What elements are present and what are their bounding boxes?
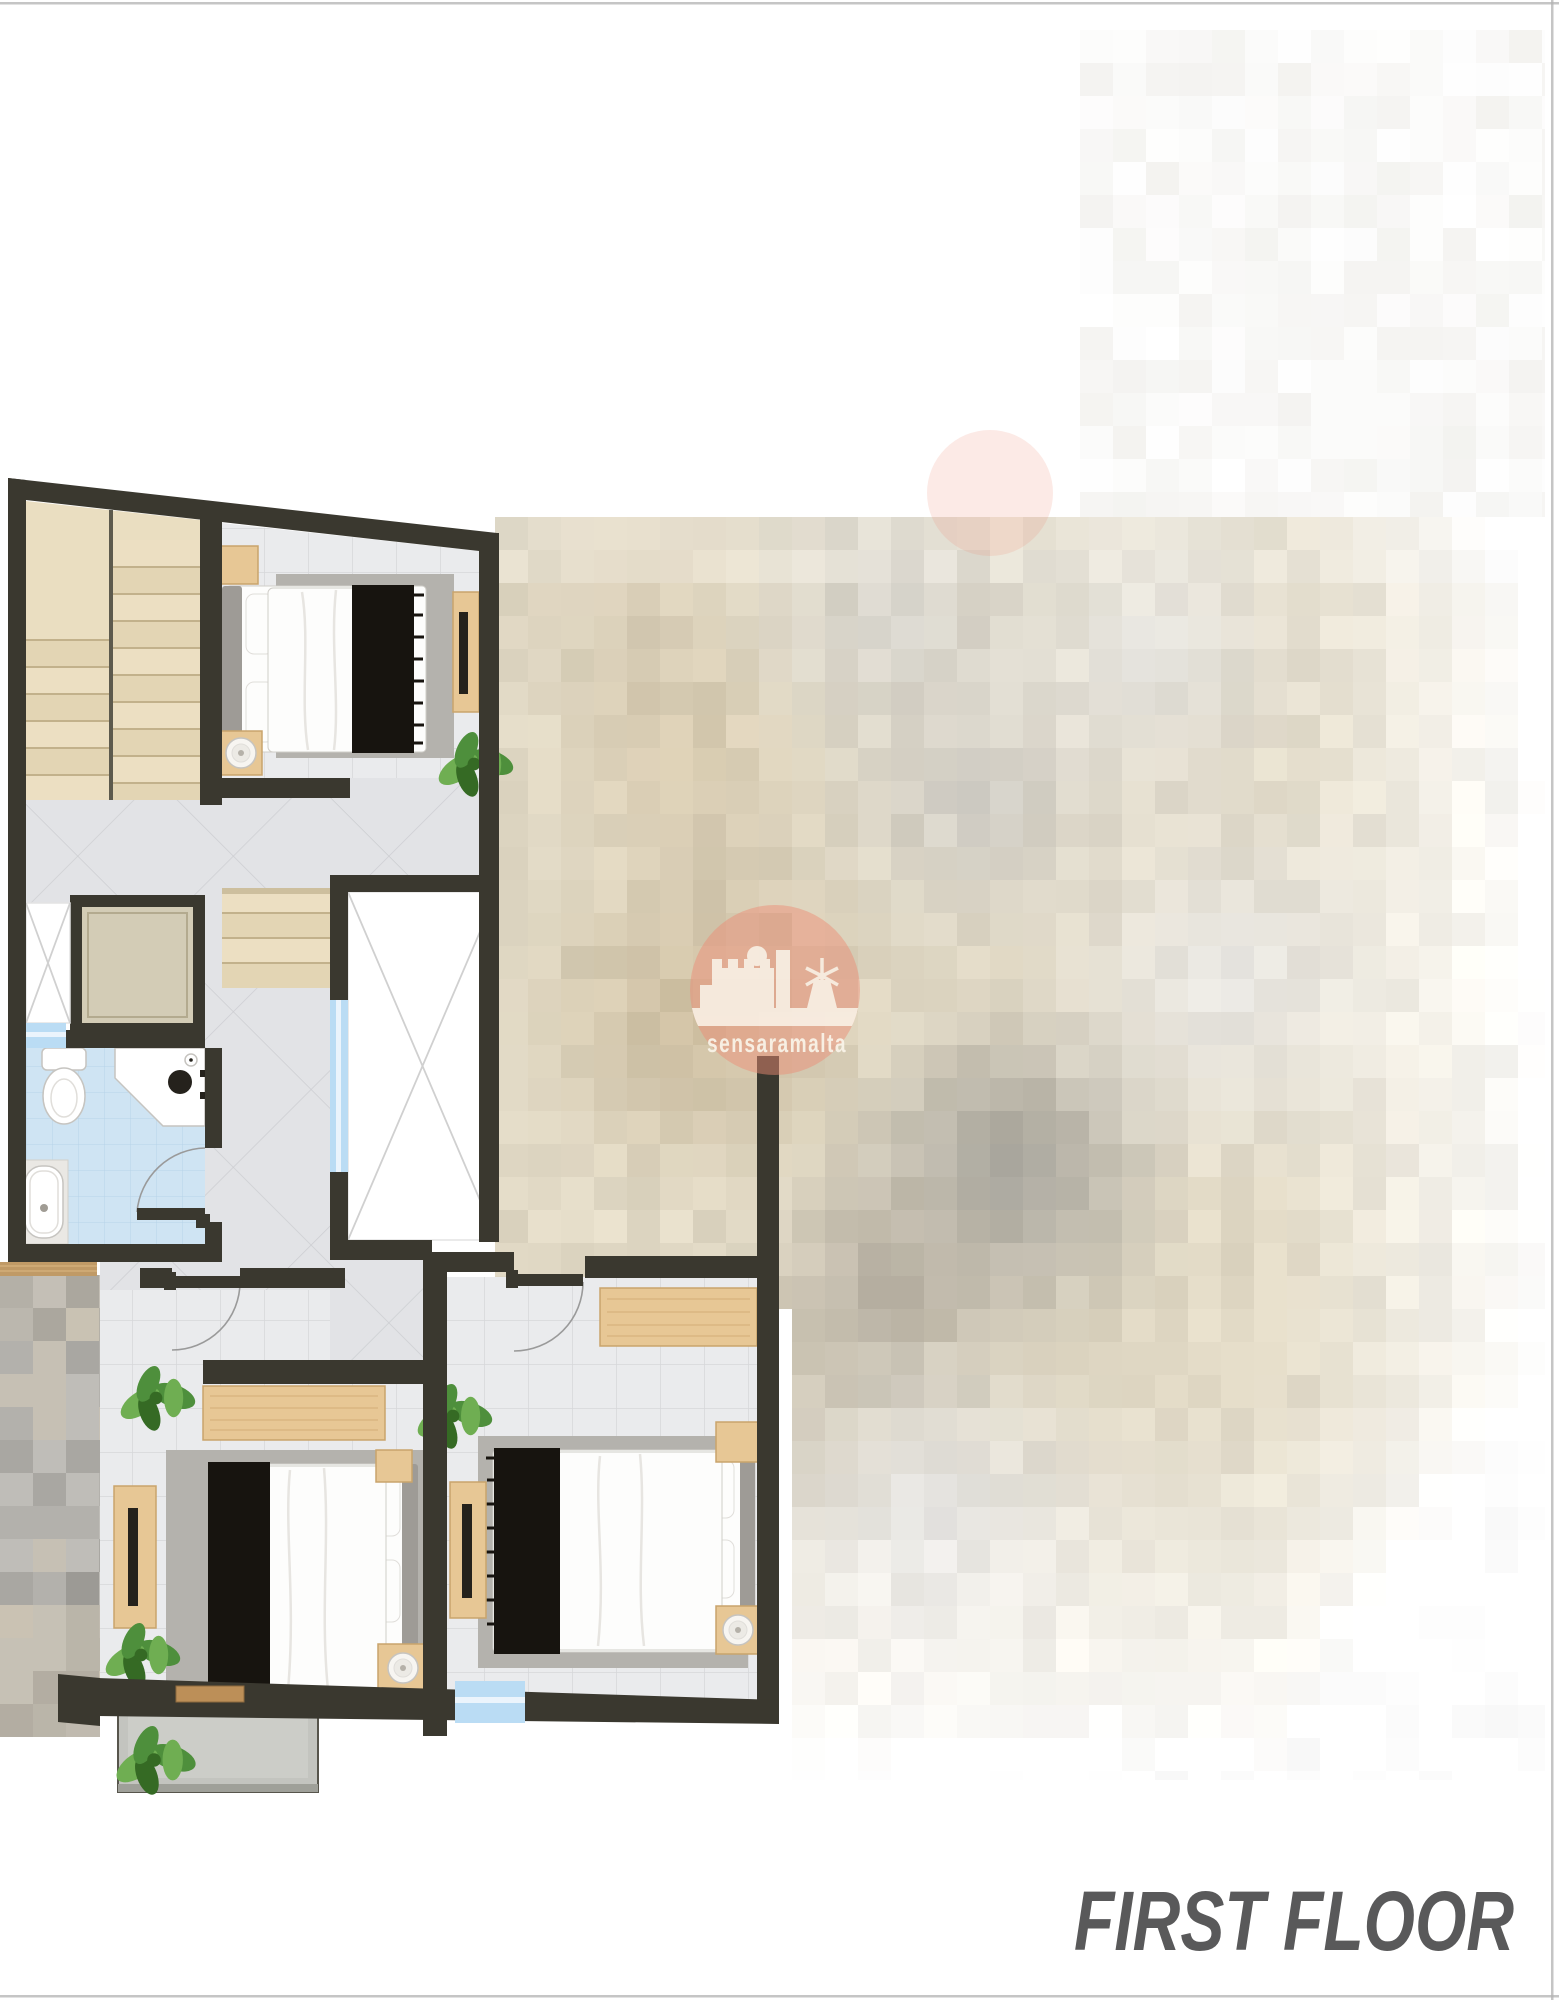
toilet [43, 1068, 85, 1124]
tv [459, 612, 468, 694]
void-shaft-large [348, 892, 497, 1240]
wall-void-bottom [330, 1240, 432, 1260]
stair-treads-right [113, 540, 200, 800]
wall-left [8, 478, 26, 1262]
blur-mosaic-left [0, 1275, 100, 1737]
photo-border-right [1551, 0, 1554, 2000]
floor-label: FIRST FLOOR [1074, 1874, 1514, 1968]
bed-throw [352, 585, 414, 753]
watermark-badge: sensaramalta [690, 905, 860, 1075]
photo-border-bottom [0, 1995, 1559, 1998]
tv [462, 1504, 472, 1598]
elevator [70, 895, 205, 1035]
door-leaf-bedroom3 [514, 1274, 583, 1286]
watermark-brand-text: sensaramalta [707, 1028, 847, 1058]
bed-headboard [222, 586, 242, 752]
wall-right [757, 1056, 779, 1723]
toilet-tank [42, 1048, 86, 1070]
blur-mosaic-top-right [1080, 30, 1545, 517]
wardrobe [203, 1386, 385, 1440]
decor-dish [226, 738, 256, 768]
blur-wood-sliver [0, 1262, 97, 1276]
door-leaf-bedroom2 [172, 1276, 240, 1288]
wall-bedroom-divider [423, 1252, 447, 1736]
wall-hall-pier-a [140, 1268, 172, 1288]
stair-divider [109, 510, 113, 800]
tv [128, 1508, 138, 1606]
wall-bath-bottom [26, 1244, 205, 1262]
wall-bottom-left-corner [58, 1674, 100, 1726]
decor-dish [388, 1653, 418, 1683]
wall-bedroom3-top [585, 1256, 757, 1278]
floor-plan-page: sensaramalta FIRST FLOOR [0, 0, 1559, 2000]
wall-bath-right-b [205, 1222, 222, 1262]
photo-border-top [0, 2, 1559, 5]
void-shaft-small [26, 903, 70, 1023]
wall-bedroom1-bottom [205, 778, 350, 798]
staircase-flight [222, 888, 330, 988]
wall-hall-pier-b [240, 1268, 345, 1288]
wall-stairs-divider [200, 518, 222, 805]
bedroom2-furniture [100, 1362, 430, 1706]
shower-drain-icon [168, 1070, 192, 1094]
balcony-threshold [176, 1686, 244, 1702]
watermark-faint-circle [927, 430, 1053, 556]
wardrobe [600, 1288, 757, 1346]
nightstand [716, 1422, 758, 1462]
door-leaf-bathroom [137, 1208, 205, 1220]
nightstand [376, 1450, 412, 1482]
bed-duvet [556, 1452, 722, 1650]
wall-bedroom2-top [203, 1360, 423, 1384]
wall-bath-right-a [205, 1048, 222, 1148]
bed-throw [494, 1448, 560, 1654]
bed-throw [208, 1462, 270, 1696]
bathtub-drain [40, 1204, 48, 1212]
stair-treads-left [26, 640, 109, 800]
wall-void-top [330, 875, 497, 892]
nightstand [220, 546, 258, 584]
floor-plan-image: sensaramalta FIRST FLOOR [0, 0, 1559, 2000]
staircase-main [26, 501, 200, 800]
decor-dish [723, 1615, 753, 1645]
